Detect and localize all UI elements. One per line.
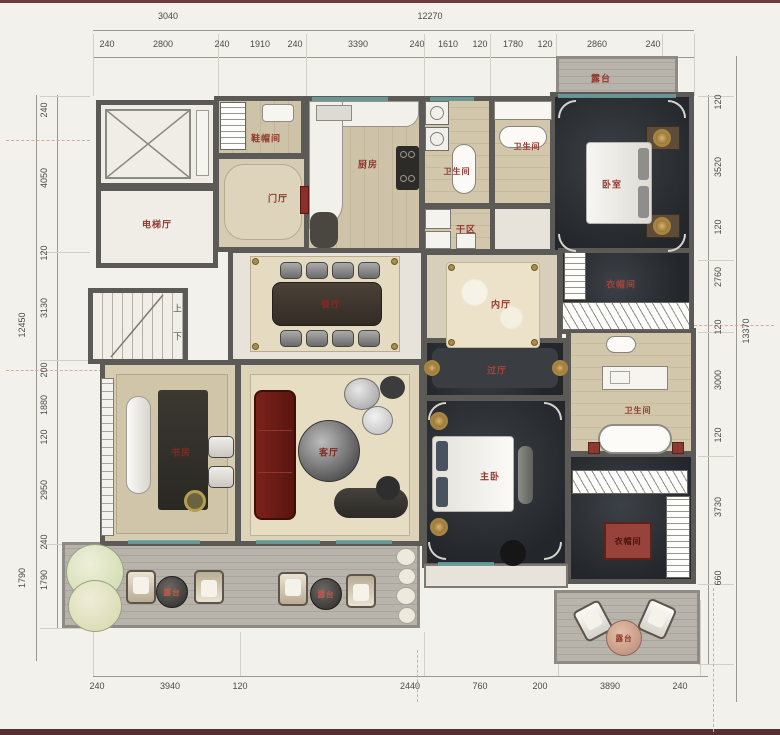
corner-dot [531, 339, 538, 346]
axis-line [694, 325, 774, 326]
ext-line [240, 632, 241, 676]
vanity-basin [610, 371, 630, 384]
dim-label: 2860 [587, 39, 607, 49]
dining-chair [306, 330, 328, 347]
dim-label: 4050 [39, 168, 49, 188]
dining-chair [358, 262, 380, 279]
ext-line [700, 600, 701, 676]
room-label-passage: 过厅 [487, 364, 507, 377]
elevator-panel [196, 110, 209, 176]
dim-label: 240 [409, 39, 424, 49]
dim-label: 240 [39, 102, 49, 117]
foyer-rug [224, 164, 302, 240]
pillow [638, 186, 649, 218]
dim-label: 120 [39, 245, 49, 260]
side-pouf [376, 476, 400, 500]
dim-label: 2800 [153, 39, 173, 49]
wardrobe [666, 496, 690, 578]
room-label-study: 书房 [171, 446, 191, 459]
bath-stool [588, 442, 600, 454]
dim-label: 12450 [17, 312, 27, 337]
balcony-marble-strip [424, 564, 568, 588]
washer-drum [430, 132, 444, 146]
room-label-kitchen: 厨房 [358, 158, 378, 171]
dim-label: 240 [672, 681, 687, 691]
axis-line [417, 650, 418, 702]
bathtub [598, 424, 672, 454]
kitchen-island [310, 212, 338, 248]
dim-label: 120 [537, 39, 552, 49]
terrace-chair [194, 570, 224, 604]
dim-label: 240 [214, 39, 229, 49]
axis-line [6, 370, 102, 371]
dim-label: 1880 [39, 395, 49, 415]
lamp [653, 217, 671, 235]
bed-bench [518, 446, 533, 504]
dim-label: 240 [287, 39, 302, 49]
window [438, 562, 494, 566]
dim-label: 12270 [417, 11, 442, 21]
room-label-closet-2: 衣帽间 [614, 535, 641, 547]
dining-chair [332, 330, 354, 347]
dining-chair [358, 330, 380, 347]
axis-line [6, 140, 90, 141]
pouf [500, 540, 526, 566]
dim-label: 3040 [158, 11, 178, 21]
dim-line-top-overall [93, 30, 694, 31]
dim-label: 120 [713, 219, 723, 234]
dim-label: 120 [713, 319, 723, 334]
dim-label: 240 [89, 681, 104, 691]
room-label-bedroom-2: 卧室 [602, 178, 622, 191]
dim-label: 2760 [713, 267, 723, 287]
ext-line [490, 34, 491, 96]
dining-chair [332, 262, 354, 279]
frame-bottom-strip [0, 729, 780, 735]
room-label-master-bedroom: 主卧 [480, 470, 500, 483]
dim-line-left-outer [36, 95, 37, 661]
elevator-shaft-symbol [104, 108, 192, 180]
shoe-cabinet [220, 102, 246, 150]
room-label-dry-area: 干区 [456, 223, 476, 236]
study-chair [208, 466, 234, 488]
kitchen-sink [316, 105, 352, 121]
floor-plan-canvas: 3040 12270 240 2800 240 1910 240 3390 24… [0, 0, 780, 735]
pebble [398, 607, 416, 624]
corner-dot [391, 258, 398, 265]
sofa [254, 390, 296, 520]
stair-up-label: 上 [173, 302, 183, 315]
pebble [396, 587, 416, 605]
room-label-living: 客厅 [319, 446, 339, 459]
dim-label: 1610 [438, 39, 458, 49]
dim-label: 120 [39, 429, 49, 444]
wall-lamp [424, 360, 440, 376]
pillow [436, 441, 448, 471]
ext-line [694, 34, 695, 96]
wardrobe [564, 252, 586, 300]
room-label-elevator-hall: 电梯厅 [142, 218, 172, 231]
dim-label: 3730 [713, 497, 723, 517]
dim-label: 200 [532, 681, 547, 691]
dim-label: 120 [713, 94, 723, 109]
study-shelf [101, 378, 114, 536]
window [256, 540, 320, 544]
room-label-bath-1: 卫生间 [443, 165, 470, 177]
dim-label: 1790 [39, 570, 49, 590]
room-label-terrace-r: 露台 [615, 632, 632, 643]
dim-label: 120 [232, 681, 247, 691]
pouf [362, 406, 393, 435]
stove-burner [400, 175, 407, 182]
corner-dot [391, 343, 398, 350]
stove-burner [400, 151, 407, 158]
cabinet [425, 209, 451, 229]
room-label-bath-2: 卫生间 [513, 140, 540, 152]
dim-label: 120 [713, 427, 723, 442]
dim-label: 240 [39, 534, 49, 549]
window [128, 540, 200, 544]
bath-stool [672, 442, 684, 454]
foyer-console [300, 186, 309, 214]
axis-line [713, 588, 714, 732]
shoe-bench [262, 104, 294, 122]
vanity [494, 101, 552, 120]
cabinet [425, 231, 451, 249]
dim-label: 240 [99, 39, 114, 49]
terrace-chair [278, 572, 308, 606]
lamp [653, 129, 671, 147]
dim-label: 1780 [503, 39, 523, 49]
dim-label: 3890 [600, 681, 620, 691]
study-chair [208, 436, 234, 458]
dim-label: 2440 [400, 681, 420, 691]
terrace-chair [346, 574, 376, 608]
pillow [638, 148, 649, 180]
dim-line-bottom [93, 676, 708, 677]
plant [68, 580, 122, 632]
room-hall-connector [490, 204, 558, 254]
sink [606, 336, 636, 353]
corner-dot [252, 258, 259, 265]
lamp [430, 412, 448, 430]
ext-line [306, 34, 307, 96]
dining-chair [280, 330, 302, 347]
sofa-seam [258, 430, 292, 431]
dining-chair [280, 262, 302, 279]
dining-chair [306, 262, 328, 279]
ext-line [93, 34, 94, 96]
pouf [380, 376, 405, 399]
dim-label: 240 [645, 39, 660, 49]
window [558, 94, 676, 98]
corner-dot [448, 264, 455, 271]
dim-label: 2950 [39, 480, 49, 500]
dim-label: 3520 [713, 157, 723, 177]
ext-line [93, 632, 94, 676]
room-label-shoe-closet: 鞋帽间 [251, 132, 281, 145]
corner-dot [252, 343, 259, 350]
sofa-seam [258, 472, 292, 473]
stair-down-label: 下 [173, 330, 183, 343]
ext-line [40, 96, 90, 97]
frame-top-strip [0, 0, 780, 3]
dim-line-right-outer [736, 56, 737, 702]
pebble [398, 568, 416, 585]
dim-label: 3390 [348, 39, 368, 49]
corner-dot [448, 339, 455, 346]
wall-lamp [552, 360, 568, 376]
room-label-terrace-b1: 露台 [163, 586, 180, 597]
pillow [436, 477, 448, 507]
room-label-closet-1: 衣帽间 [606, 278, 636, 291]
dim-line-left-inner [57, 95, 58, 628]
room-label-master-bath: 卫生间 [624, 404, 651, 416]
wardrobe [572, 470, 688, 494]
floor-lamp [184, 490, 206, 512]
dim-label: 760 [472, 681, 487, 691]
dim-label: 660 [713, 570, 723, 585]
ext-line [698, 664, 734, 665]
dim-label: 120 [472, 39, 487, 49]
dim-line-right-inner [708, 95, 709, 664]
dim-label: 3000 [713, 370, 723, 390]
room-label-terrace-top: 露台 [591, 72, 611, 85]
dim-label: 200 [39, 362, 49, 377]
ext-line [698, 260, 734, 261]
ext-line [424, 632, 425, 676]
dim-label: 3130 [39, 298, 49, 318]
stove-burner [408, 175, 415, 182]
dim-label: 13370 [741, 318, 751, 343]
room-label-foyer: 门厅 [268, 192, 288, 205]
corner-dot [531, 264, 538, 271]
stove-burner [408, 151, 415, 158]
washer-drum [430, 106, 444, 120]
dim-label: 1790 [17, 568, 27, 588]
room-label-inner-hall: 内厅 [491, 298, 511, 311]
stair-break-line [93, 293, 183, 359]
dim-label: 1910 [250, 39, 270, 49]
terrace-chair [126, 570, 156, 604]
wardrobe [562, 302, 690, 330]
room-label-dining: 餐厅 [321, 298, 341, 311]
room-label-terrace-b2: 露台 [317, 588, 334, 599]
window [336, 540, 392, 544]
ext-line [698, 456, 734, 457]
pebble [396, 548, 416, 566]
dim-label: 3940 [160, 681, 180, 691]
lamp [430, 518, 448, 536]
study-chaise [126, 396, 151, 494]
